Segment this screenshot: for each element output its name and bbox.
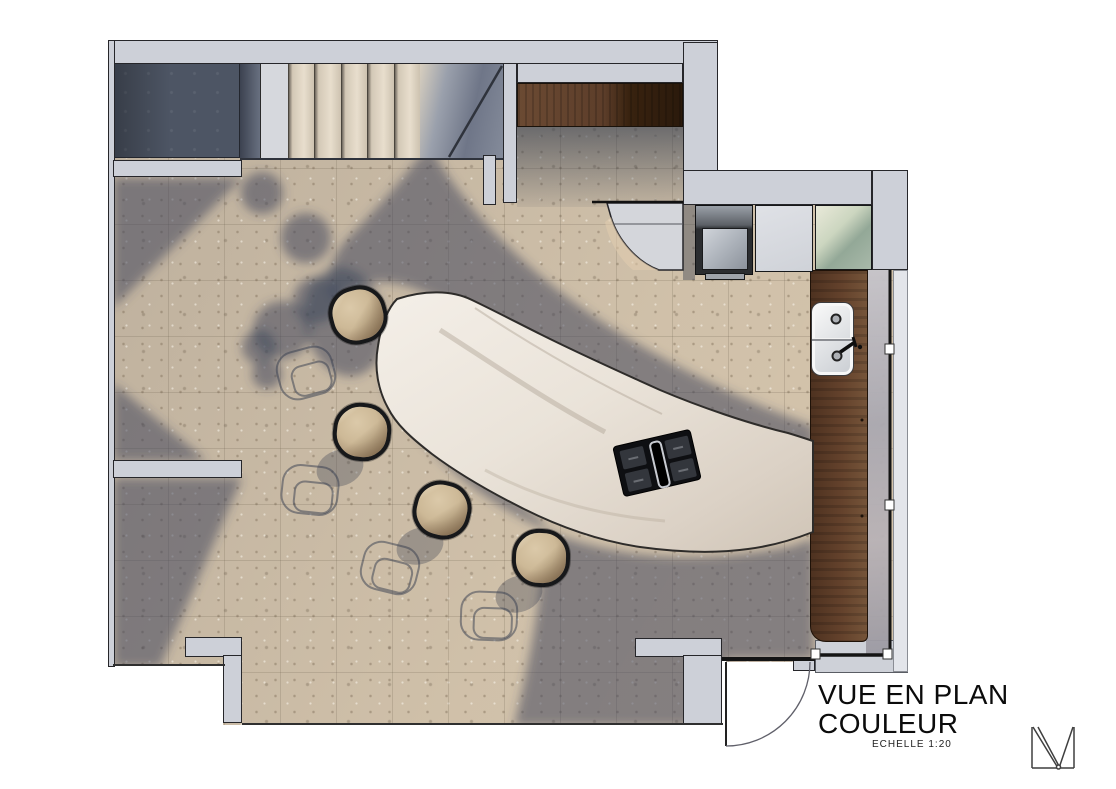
counter-knobs — [861, 419, 864, 518]
floor-plan-sheet: VUE EN PLAN COULEUR ECHELLE 1:20 — [0, 0, 1116, 789]
stair-rail-line — [449, 66, 502, 157]
faucet — [839, 337, 862, 353]
window-mullions — [811, 344, 894, 659]
floor-edge-line — [242, 723, 723, 725]
sink-drains — [832, 315, 842, 361]
architect-logo-icon — [1028, 720, 1078, 772]
floor-edge-line — [113, 664, 225, 666]
door-swing-arc — [726, 662, 810, 746]
detail-layer — [0, 0, 1116, 789]
drawing-title-line1: VUE EN PLAN — [818, 680, 1058, 709]
drawing-title-line2: COULEUR — [818, 709, 1058, 738]
drawing-annotation: VUE EN PLAN COULEUR ECHELLE 1:20 — [818, 680, 1058, 750]
